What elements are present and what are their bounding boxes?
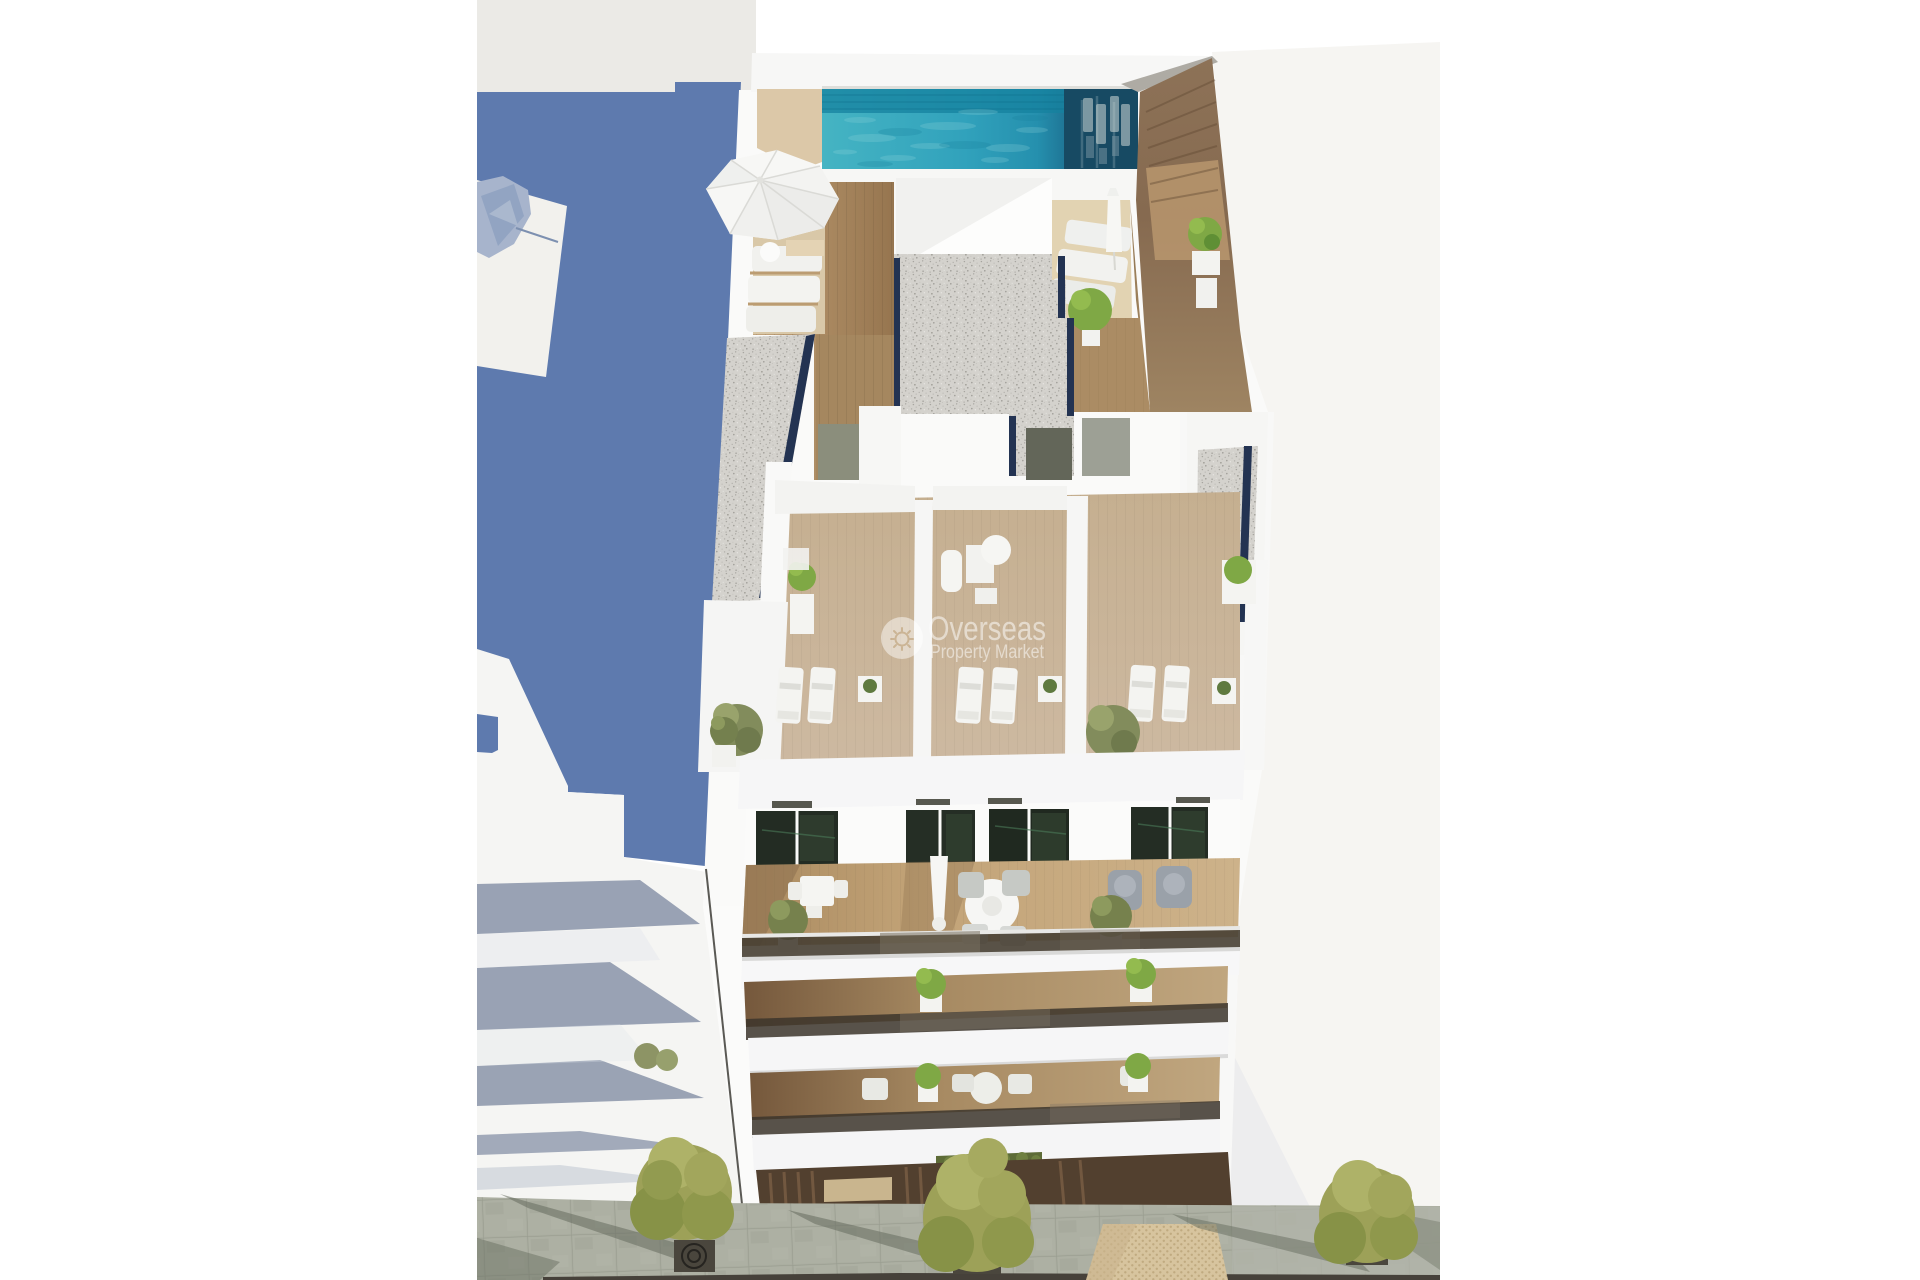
svg-text:Property Market: Property Market [930,642,1045,663]
